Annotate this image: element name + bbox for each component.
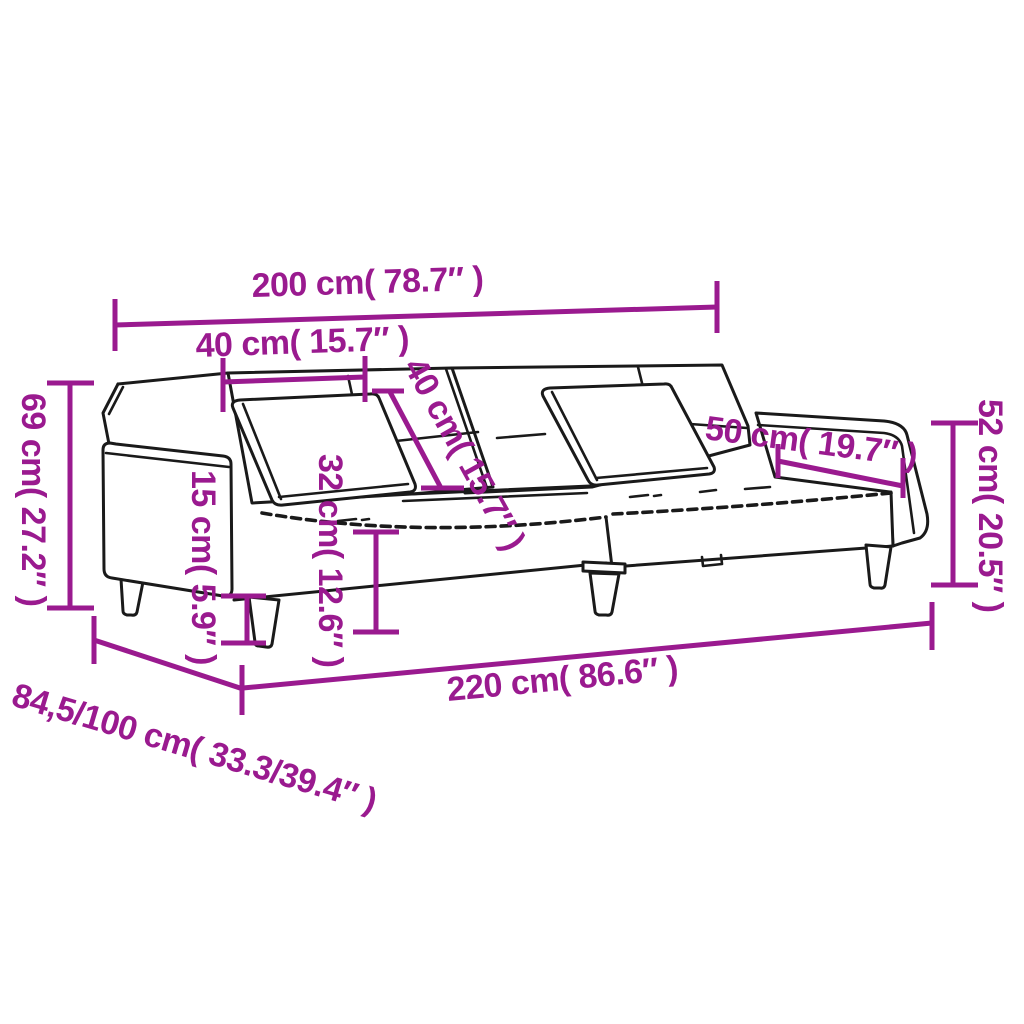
diagram-canvas: 200 cm( 78.7″ ) 40 cm( 15.7″ ) 40 cm( 15… — [0, 0, 1024, 1024]
leg-rear-right — [866, 545, 891, 588]
dim-leg-height-label: 15 cm( 5.9″ ) — [184, 470, 222, 665]
sofa-dimension-diagram: 200 cm( 78.7″ ) 40 cm( 15.7″ ) 40 cm( 15… — [0, 0, 1024, 1024]
leg-seat-left — [249, 597, 279, 647]
dim-armrest-height-label: 52 cm( 20.5″ ) — [971, 399, 1009, 612]
dim-backrest-height-label: 69 cm( 27.2″ ) — [14, 393, 52, 606]
dim-backrest-section-width-label: 40 cm( 15.7″ ) — [195, 320, 410, 365]
dim-seat-height-label: 32 cm( 12.6″ ) — [311, 454, 349, 667]
leg-front-left — [121, 579, 143, 615]
leg-center-plate — [583, 562, 625, 573]
leg-center — [590, 573, 619, 615]
dim-backrest-height: 69 cm( 27.2″ ) — [14, 383, 94, 608]
dim-top-width-label: 200 cm( 78.7″ ) — [251, 260, 484, 305]
dim-depth-range-label: 84,5/100 cm( 33.3/39.4″ ) — [8, 676, 381, 820]
sofa-back-left-corner — [103, 373, 228, 444]
dim-armrest-height: 52 cm( 20.5″ ) — [931, 399, 1009, 612]
